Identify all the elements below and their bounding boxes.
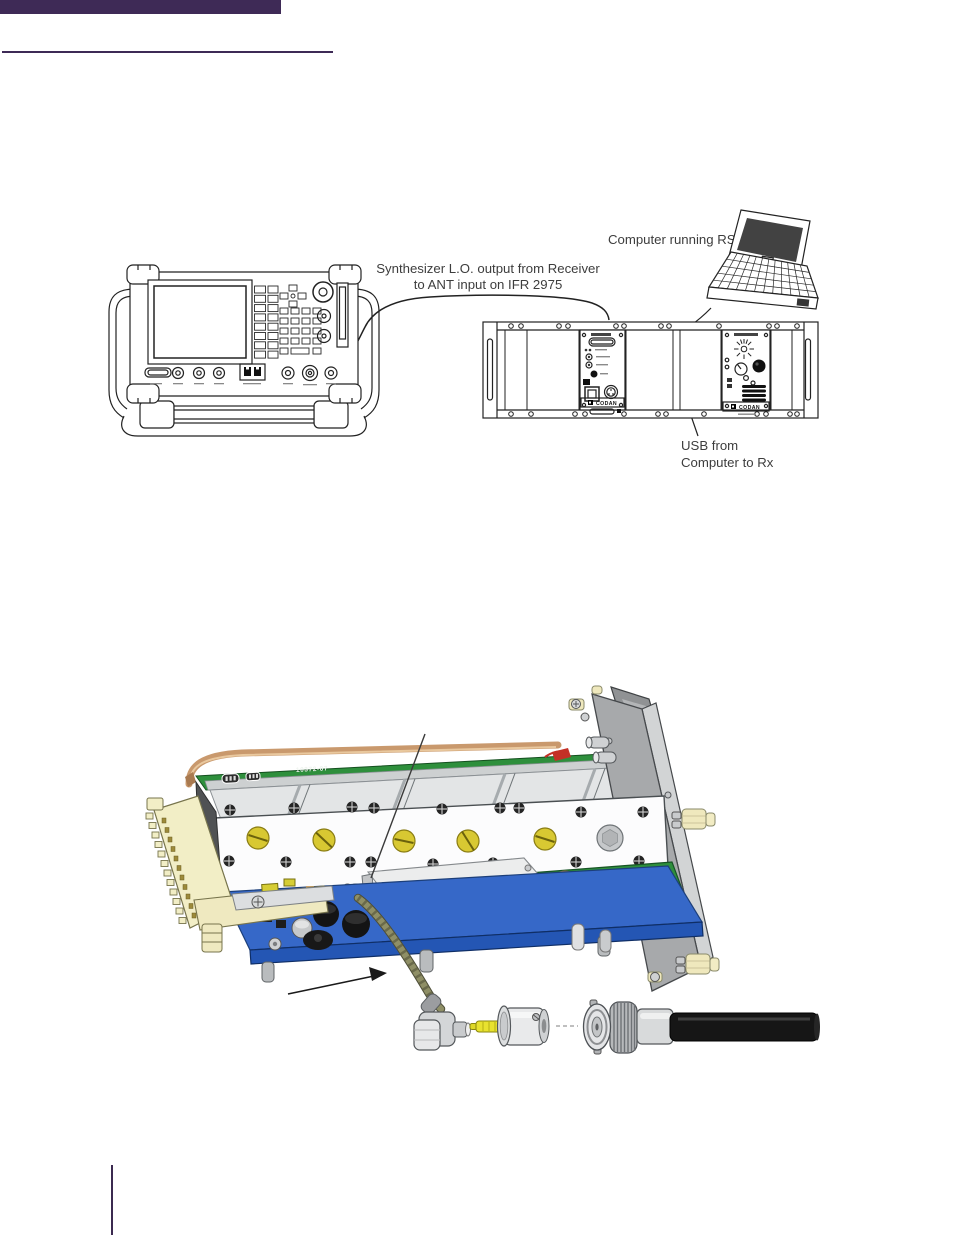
right-angle-mcx-connector <box>414 992 471 1050</box>
ifr-screen-bezel <box>148 280 252 364</box>
usb-label-line2: Computer to Rx <box>681 455 774 470</box>
receiver-module-illustration: 10372-07 <box>140 680 830 1060</box>
computer-running-rss-label: Computer running RSS <box>608 232 745 247</box>
standoff <box>262 962 274 982</box>
laptop-computer <box>707 210 818 309</box>
usb-label-line1: USB from <box>681 438 738 453</box>
usb-port <box>583 379 590 385</box>
panel-bnc-upper <box>672 809 715 829</box>
header-accent-bar <box>0 0 281 14</box>
bnc-plug <box>584 1000 674 1054</box>
disk-drive <box>337 283 348 347</box>
power-button <box>591 371 598 378</box>
synthesizer-label-line2: to ANT input on IFR 2975 <box>414 277 563 292</box>
codan-receiver-module: CODAN <box>580 330 625 414</box>
power-knob <box>753 360 766 373</box>
handle-grip-right <box>314 401 348 428</box>
handle-grip-left <box>140 401 174 428</box>
laptop-port <box>797 298 810 306</box>
codan-brand-left: CODAN <box>596 401 617 407</box>
handle-bar <box>174 406 314 423</box>
header-rule <box>2 51 333 53</box>
codan-brand-right: CODAN <box>739 405 760 411</box>
footer-rule <box>111 1165 113 1235</box>
test-setup-diagram: Computer running RSS Synthesizer L.O. ou… <box>80 195 840 485</box>
selector-sunburst <box>734 339 754 359</box>
blue-pcb <box>222 866 703 982</box>
synthesizer-label-line1: Synthesizer L.O. output from Receiver <box>376 261 600 276</box>
codan-power-module: CODAN <box>722 330 770 415</box>
cable-arrow <box>288 967 387 994</box>
standoff-2 <box>420 950 433 972</box>
coax-adapter <box>470 1006 549 1046</box>
rack-unit: CODAN <box>483 322 818 418</box>
black-coax-cable <box>670 1013 820 1041</box>
ifr-2975-test-set <box>109 265 379 436</box>
manual-page: Computer running RSS Synthesizer L.O. ou… <box>0 0 954 1235</box>
